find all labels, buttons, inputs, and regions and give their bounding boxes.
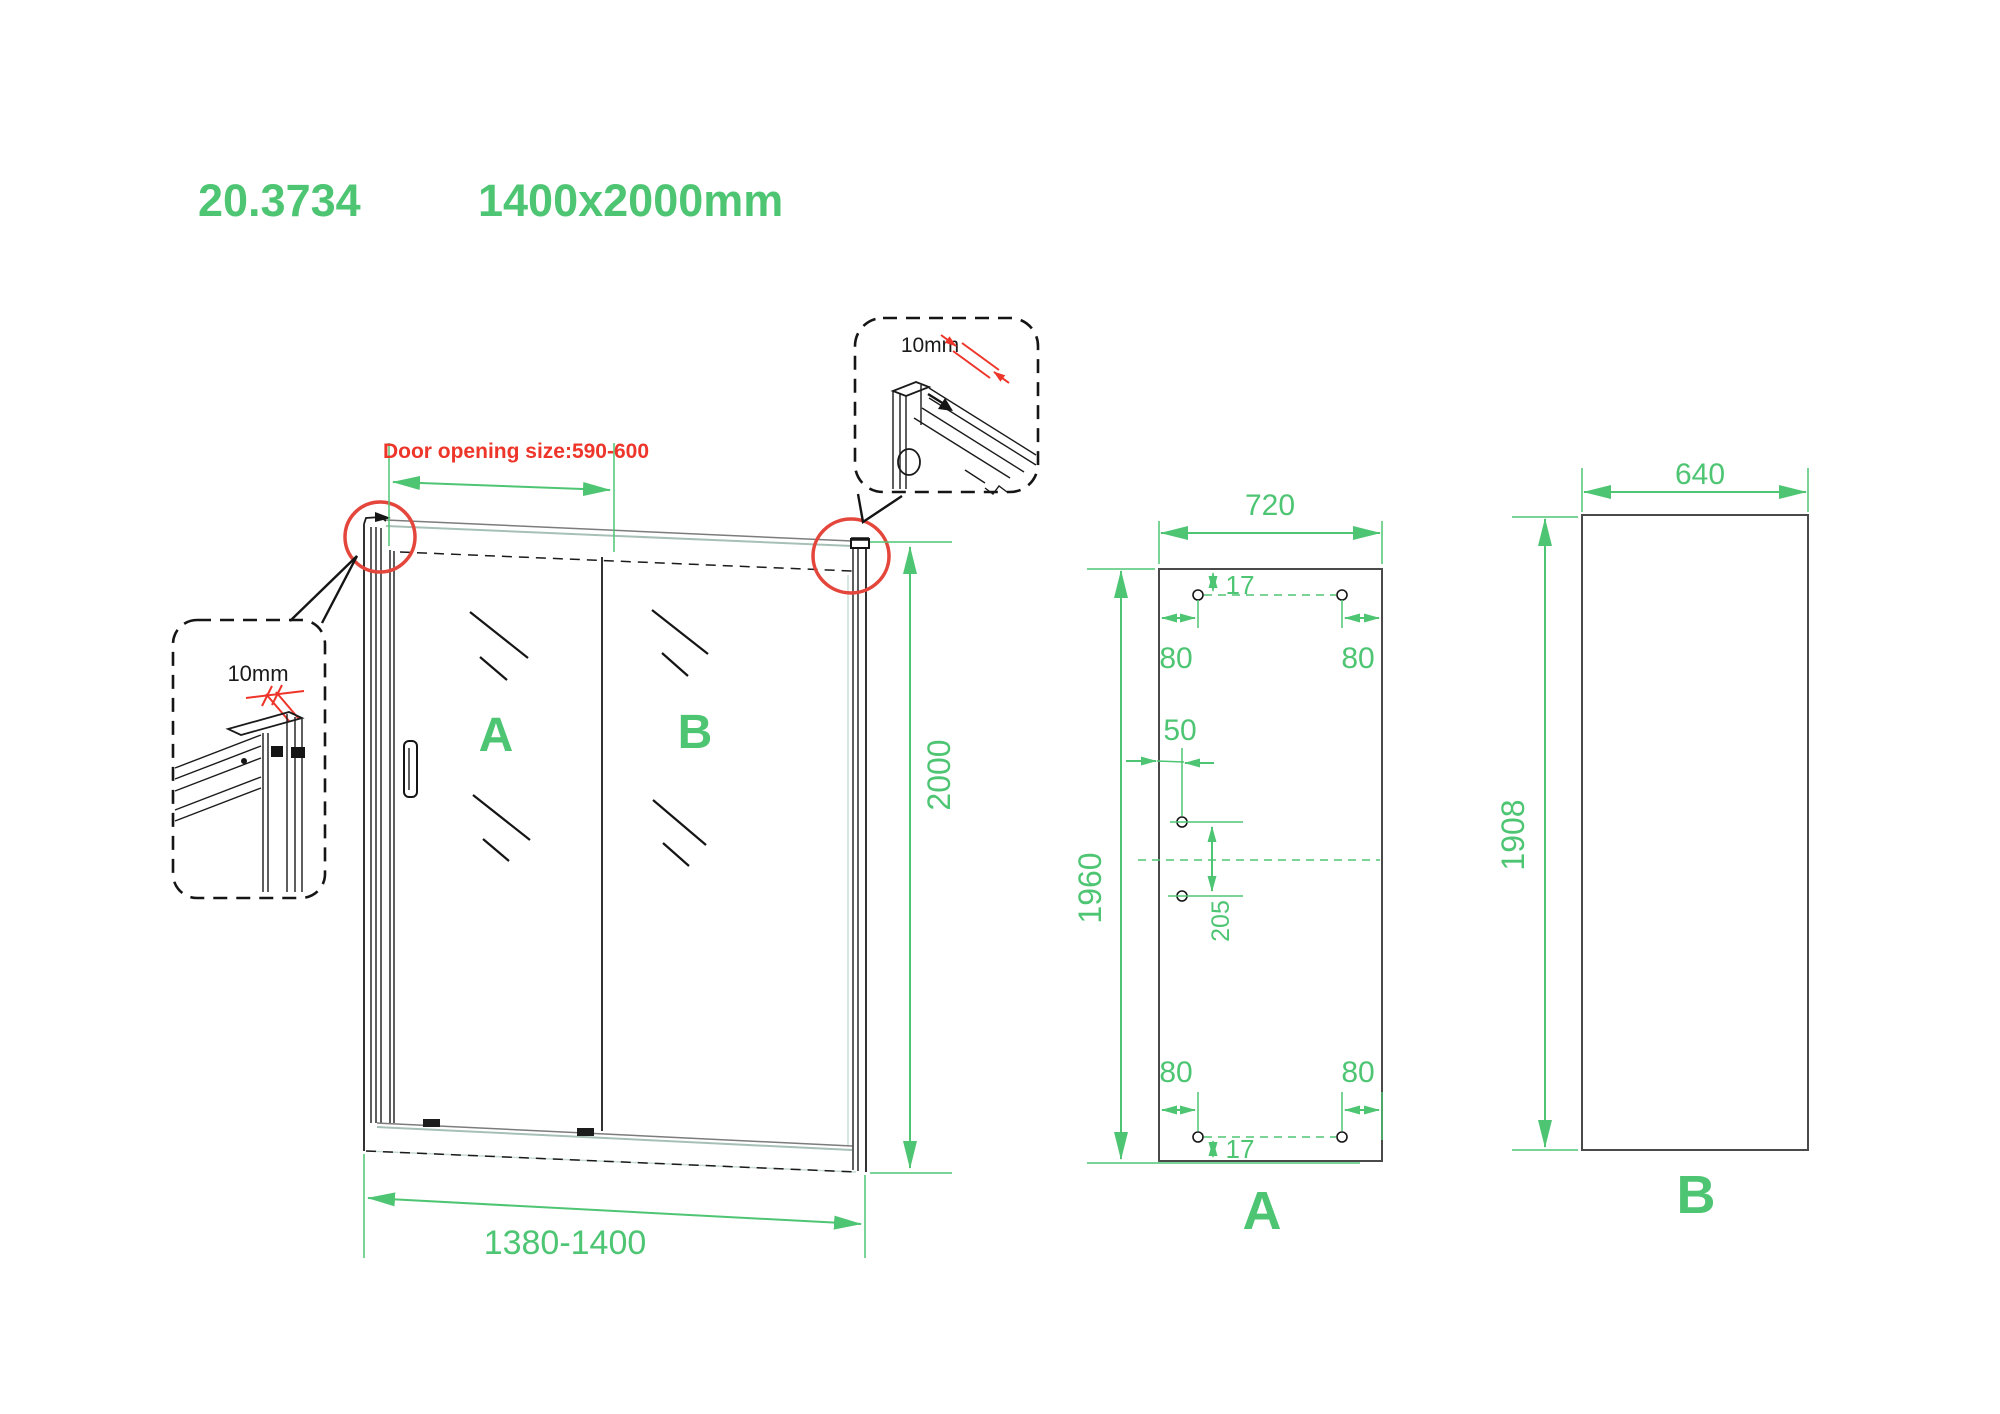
detail-circle-left [345,502,415,572]
drill-hole [1337,1132,1347,1142]
panel-a-dim-80-top-right: 80 [1341,642,1374,675]
width-dim-text: 1380-1400 [484,1224,647,1262]
roller-block [271,746,283,757]
profile-isometric-right [893,382,1036,494]
drill-hole [1193,1132,1203,1142]
door-handle [404,741,417,797]
height-dim-text: 2000 [921,739,957,810]
drill-hole [1193,590,1203,600]
panel-a-label: A [1243,1181,1282,1241]
panel-a-drawing: 720 1960 17 80 80 50 205 [1072,489,1382,1241]
panel-b-label: B [1677,1165,1716,1225]
panel-a-dim-720: 720 [1245,489,1295,522]
panel-a-dim-80-bottom-right: 80 [1341,1056,1374,1089]
panel-a-dim-1960: 1960 [1072,852,1108,923]
callout-pointer-left [290,556,357,623]
technical-drawing-page: 20.3734 1400x2000mm [0,0,2000,1414]
left-wall-profile [364,512,391,1151]
detail-right-10mm-label: 10mm [901,334,959,357]
title-model: 20.3734 [198,175,361,226]
profile-isometric-left [175,712,305,892]
panel-b-dim-640: 640 [1675,458,1725,491]
detail-circle-right [813,519,889,593]
gap-marks-red [941,335,1009,383]
panel-b-dim-1908: 1908 [1495,799,1531,870]
door-opening-note: Door opening size:590-600 [383,440,649,463]
drill-hole [1337,590,1347,600]
detail-callout-left: 10mm [173,620,325,898]
panel-a-dim-205: 205 [1207,900,1235,942]
callout-pointer-right [858,494,902,522]
main-elevation: A B Door opening size:590-600 2000 1380- [290,440,957,1262]
panel-a-dim-80-top-left: 80 [1159,642,1192,675]
detail-left-10mm-label: 10mm [227,661,288,686]
top-rail [386,520,852,571]
panel-a-glass-label: A [479,709,514,762]
shower-door-diagram: 20.3734 1400x2000mm [0,0,2000,1414]
roller-block [291,747,305,758]
door-guide-clip [423,1119,440,1127]
panel-b-glass-label: B [678,706,713,759]
panel-b-drawing: 640 1908 B [1495,458,1808,1225]
panel-a-dim-80-bottom-left: 80 [1159,1056,1192,1089]
panel-a-dim-50: 50 [1163,714,1196,747]
panel-a-dim-17-bottom: 17 [1226,1134,1255,1164]
height-dimension: 2000 [870,542,957,1173]
detail-callout-right: 10mm [855,318,1038,494]
width-dimension: 1380-1400 [364,1154,865,1262]
screw-dot [241,758,247,764]
door-guide-clip [577,1128,594,1136]
right-wall-profile [848,539,869,1172]
title-size: 1400x2000mm [478,175,783,226]
bottom-rail [366,1119,856,1172]
panel-a-dim-17-top: 17 [1226,570,1255,600]
